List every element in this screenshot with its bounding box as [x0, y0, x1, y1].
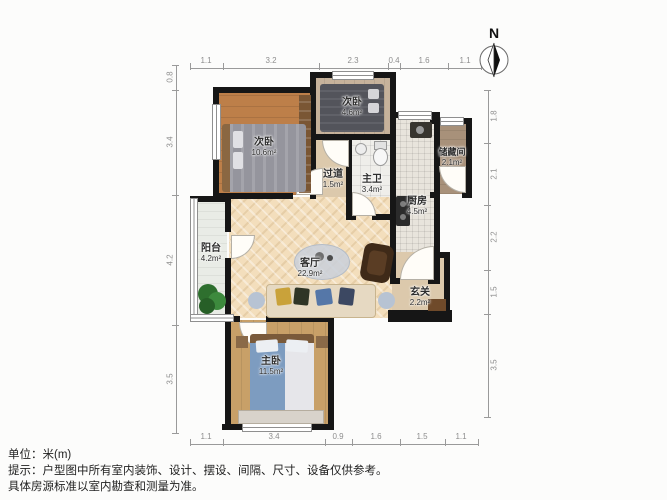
- pillow: [233, 131, 243, 148]
- room-label-master-bedroom: 主卧 11.5m²: [259, 356, 283, 376]
- dim-label: 0.8: [166, 71, 175, 82]
- room-name: 主卧: [259, 356, 283, 367]
- room-label-entry: 玄关 2.2m²: [410, 287, 430, 307]
- room-name: 阳台: [201, 243, 221, 254]
- compass: N: [474, 26, 514, 85]
- room-area: 4.5m²: [407, 207, 427, 216]
- wall-segment: [225, 316, 231, 430]
- window: [332, 71, 374, 80]
- tick: [484, 270, 491, 271]
- dimension-line: [190, 68, 481, 69]
- room-name: 玄关: [410, 287, 430, 298]
- wall-segment: [225, 258, 231, 322]
- tick: [478, 439, 479, 446]
- tick: [448, 63, 449, 70]
- dim-label: 1.5: [490, 286, 499, 297]
- tick: [223, 63, 224, 70]
- room-area: 11.5m²: [259, 367, 283, 376]
- decor-dot: [327, 255, 333, 261]
- pouf: [248, 292, 265, 309]
- tick: [445, 439, 446, 446]
- pillow: [368, 89, 379, 99]
- wall-segment: [328, 316, 334, 430]
- dimension-line: [176, 65, 177, 433]
- wall-segment: [388, 310, 452, 322]
- room-area: 2.2m²: [410, 298, 430, 307]
- tick: [223, 439, 224, 446]
- sofa-pillow: [293, 287, 310, 305]
- dim-label: 2.1: [490, 168, 499, 179]
- window: [242, 423, 312, 432]
- room-name: 主卫: [362, 174, 382, 185]
- tick: [190, 63, 191, 70]
- tick: [319, 63, 320, 70]
- bench: [238, 410, 324, 424]
- hint-note-line2: 具体房源标准以室内勘查和测量为准。: [8, 479, 388, 495]
- window: [212, 104, 221, 160]
- dimension-ruler-top: 1.1 3.2 2.3 0.4 1.6 1.1: [190, 56, 481, 70]
- pillow: [368, 103, 379, 113]
- dim-label: 3.4: [166, 136, 175, 147]
- dim-label: 4.2: [166, 254, 175, 265]
- pillow: [256, 339, 279, 353]
- room-name: 次卧: [252, 137, 277, 148]
- tick: [484, 417, 491, 418]
- dimension-line: [190, 444, 478, 445]
- hint-note-line1: 提示：户型图中所有室内装饰、设计、摆设、间隔、尺寸、设备仅供参考。: [8, 463, 388, 479]
- room-label-hallway: 过道 1.5m²: [323, 169, 343, 189]
- tick: [172, 433, 179, 434]
- room-area: 2.1m²: [438, 158, 465, 167]
- north-label: N: [474, 26, 514, 40]
- room-label-bedroom-top: 次卧 4.6m²: [342, 97, 362, 117]
- room-area: 1.5m²: [323, 180, 343, 189]
- unit-note: 单位：米(m): [8, 447, 388, 463]
- tick: [484, 90, 491, 91]
- window: [398, 111, 432, 120]
- footer-notes: 单位：米(m) 提示：户型图中所有室内装饰、设计、摆设、间隔、尺寸、设备仅供参考…: [8, 447, 388, 495]
- room-area: 22.9m²: [298, 269, 323, 278]
- wall-segment: [434, 112, 440, 284]
- dim-label: 1.1: [459, 56, 470, 65]
- room-label-bathroom: 主卫 3.4m²: [362, 174, 382, 194]
- balcony-window: [190, 314, 234, 322]
- tick: [172, 195, 179, 196]
- dim-label: 1.6: [418, 56, 429, 65]
- burner: [400, 201, 406, 207]
- tick: [172, 90, 179, 91]
- tick: [325, 439, 326, 446]
- tick: [172, 65, 179, 66]
- room-label-storage: 储藏间 2.1m²: [438, 147, 465, 167]
- nightstand: [316, 336, 328, 348]
- room-area: 4.6m²: [342, 108, 362, 117]
- tick: [172, 325, 179, 326]
- room-area: 10.6m²: [252, 148, 277, 157]
- room-label-living: 客厅 22.9m²: [298, 258, 323, 278]
- dim-label: 1.1: [200, 432, 211, 441]
- dim-label: 0.9: [332, 432, 343, 441]
- pillow: [286, 339, 309, 353]
- room-name: 次卧: [342, 97, 362, 108]
- potted-plant: [199, 298, 215, 314]
- room-name: 过道: [323, 169, 343, 180]
- pouf: [378, 292, 395, 309]
- balcony-window: [190, 198, 198, 321]
- wall-segment: [225, 196, 231, 232]
- dim-label: 2.2: [490, 231, 499, 242]
- dimension-ruler-right: 1.8 2.1 2.2 1.5 3.5: [482, 90, 496, 417]
- tick: [484, 143, 491, 144]
- toilet: [373, 148, 388, 166]
- dimension-ruler-left: 0.8 3.4 4.2 3.5: [168, 65, 182, 433]
- dim-label: 3.4: [268, 432, 279, 441]
- dim-label: 3.5: [490, 359, 499, 370]
- tick: [190, 439, 191, 446]
- room-label-bedroom-left: 次卧 10.6m²: [252, 137, 277, 157]
- dim-label: 0.4: [388, 56, 399, 65]
- dim-label: 1.1: [455, 432, 466, 441]
- dim-label: 3.2: [265, 56, 276, 65]
- wall-segment: [466, 118, 472, 198]
- room-name: 储藏间: [438, 147, 465, 158]
- sofa-pillow: [275, 287, 292, 306]
- room-name: 厨房: [407, 196, 427, 207]
- window: [440, 117, 464, 126]
- compass-icon: [476, 40, 512, 80]
- floorplan-page: 次卧 10.6m² 次卧 4.6m² 过道 1.5m² 主卫 3.4m² 厨房 …: [0, 0, 667, 500]
- tick: [484, 205, 491, 206]
- washbasin: [355, 143, 367, 155]
- dim-label: 1.5: [416, 432, 427, 441]
- pillow: [233, 152, 243, 169]
- tick: [400, 63, 401, 70]
- sink: [416, 126, 424, 134]
- nightstand: [236, 336, 248, 348]
- dim-label: 1.1: [200, 56, 211, 65]
- burner: [400, 214, 406, 220]
- tick: [352, 439, 353, 446]
- dim-label: 3.5: [166, 373, 175, 384]
- dim-label: 2.3: [347, 56, 358, 65]
- sofa-pillow: [315, 288, 333, 306]
- room-label-balcony: 阳台 4.2m²: [201, 243, 221, 263]
- sofa-pillow: [338, 287, 355, 306]
- room-name: 客厅: [298, 258, 323, 269]
- room-area: 3.4m²: [362, 185, 382, 194]
- room-label-kitchen: 厨房 4.5m²: [407, 196, 427, 216]
- room-area: 4.2m²: [201, 254, 221, 263]
- tick: [484, 314, 491, 315]
- entry-mat: [428, 299, 446, 311]
- dim-label: 1.8: [490, 110, 499, 121]
- wall-segment: [213, 87, 316, 93]
- dim-label: 1.6: [370, 432, 381, 441]
- dimension-ruler-bottom: 1.1 3.4 0.9 1.6 1.5 1.1: [190, 432, 478, 446]
- tick: [400, 439, 401, 446]
